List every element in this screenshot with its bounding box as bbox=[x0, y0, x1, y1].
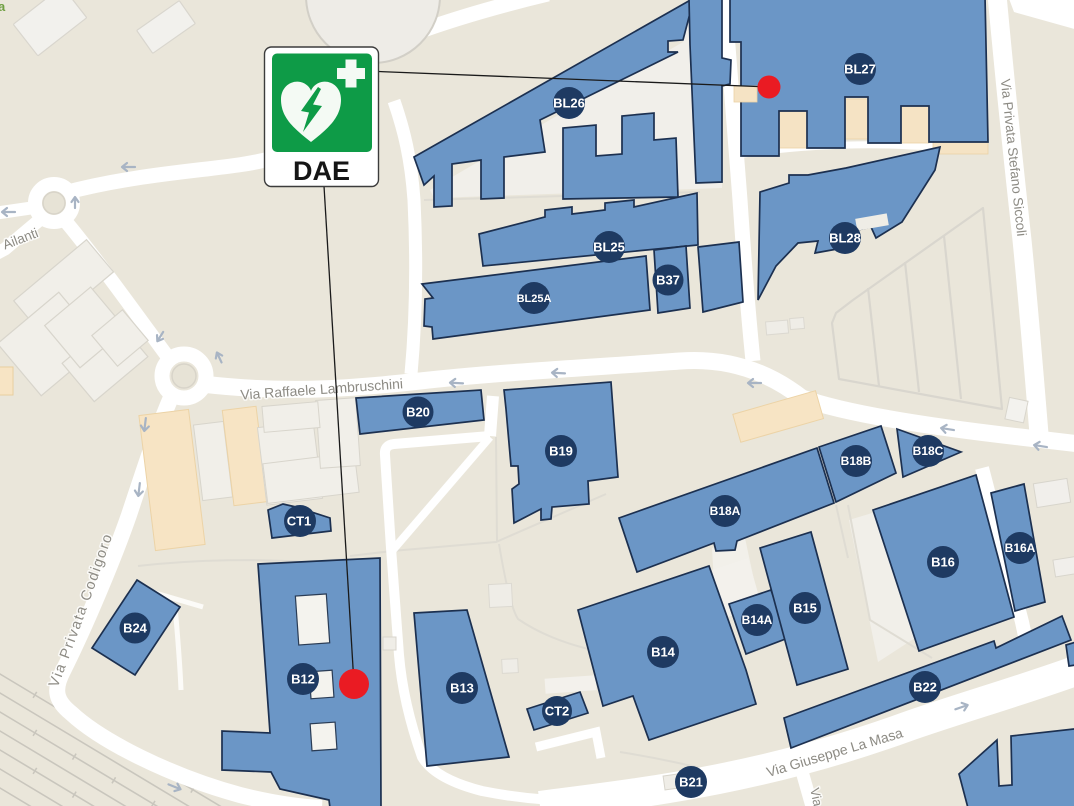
svg-text:B21: B21 bbox=[679, 775, 703, 790]
svg-text:B19: B19 bbox=[549, 444, 573, 459]
svg-text:BL25: BL25 bbox=[593, 240, 625, 255]
svg-text:BL28: BL28 bbox=[829, 231, 861, 246]
svg-text:CT1: CT1 bbox=[287, 514, 312, 529]
svg-text:a: a bbox=[0, 0, 6, 14]
svg-text:B20: B20 bbox=[406, 405, 430, 420]
svg-text:B14: B14 bbox=[651, 645, 676, 660]
svg-text:B16A: B16A bbox=[1005, 541, 1036, 555]
svg-text:BL25A: BL25A bbox=[517, 293, 552, 305]
svg-text:B12: B12 bbox=[291, 672, 315, 687]
svg-text:CT2: CT2 bbox=[545, 704, 570, 719]
svg-text:B15: B15 bbox=[793, 601, 817, 616]
svg-text:DAE: DAE bbox=[293, 156, 350, 186]
svg-text:B18B: B18B bbox=[841, 454, 872, 468]
svg-text:B16: B16 bbox=[931, 555, 955, 570]
svg-text:B18A: B18A bbox=[710, 504, 741, 518]
svg-text:B14A: B14A bbox=[742, 613, 773, 627]
svg-text:B22: B22 bbox=[913, 680, 937, 695]
svg-text:B13: B13 bbox=[450, 681, 474, 696]
svg-text:B18C: B18C bbox=[913, 444, 944, 458]
svg-text:B37: B37 bbox=[656, 273, 680, 288]
svg-text:BL26: BL26 bbox=[553, 96, 585, 111]
svg-text:BL27: BL27 bbox=[844, 62, 876, 77]
svg-text:B24: B24 bbox=[123, 621, 148, 636]
